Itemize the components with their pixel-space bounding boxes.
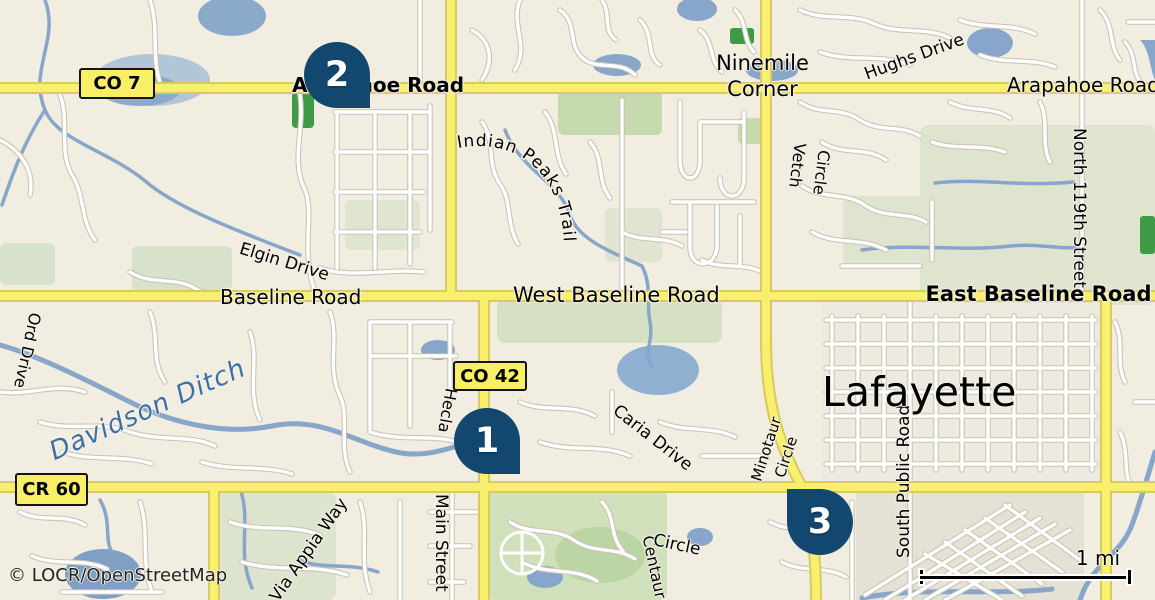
map-attribution: © LOCR/OpenStreetMap (8, 565, 227, 586)
ninemile-line2: Corner (705, 76, 820, 102)
route-badge-co42: CO 42 (453, 361, 527, 391)
east-baseline-road-label: East Baseline Road (922, 282, 1155, 306)
arapahoe-road-east-label: Arapahoe Road (1007, 73, 1152, 97)
map-viewport[interactable]: Indian Peaks Trail Arapahoe Road Ninemil… (0, 0, 1155, 600)
scale-label: 1 mi (1040, 546, 1120, 570)
map-marker-2[interactable]: 2 (304, 42, 370, 108)
svg-text:Indian Peaks Trail: Indian Peaks Trail (456, 131, 579, 243)
main-street-label: Main Street (431, 494, 451, 594)
scale-bar (920, 570, 1131, 584)
marker-1-number: 1 (475, 421, 499, 461)
map-marker-3[interactable]: 3 (787, 489, 853, 555)
map-marker-1[interactable]: 1 (454, 408, 520, 474)
marker-2-number: 2 (325, 55, 349, 95)
baseline-road-label: Baseline Road (220, 285, 360, 309)
south-public-road-label: South Public Road (894, 408, 914, 558)
ninemile-line1: Ninemile (705, 50, 820, 76)
route-badge-cr60: CR 60 (15, 473, 88, 506)
marker-3-number: 3 (808, 502, 832, 542)
scale-line (920, 576, 1131, 579)
ninemile-corner-label: Ninemile Corner (705, 50, 820, 102)
indian-peaks-trail-label: Indian Peaks Trail (456, 131, 579, 243)
north-119th-street-label: North 119th Street (1069, 128, 1089, 273)
lafayette-city-label: Lafayette (822, 368, 1007, 416)
west-baseline-road-label: West Baseline Road (513, 283, 703, 307)
route-badge-co7: CO 7 (79, 68, 155, 99)
scale-tick-right (1128, 570, 1131, 584)
curved-label-layer: Indian Peaks Trail (456, 131, 579, 243)
